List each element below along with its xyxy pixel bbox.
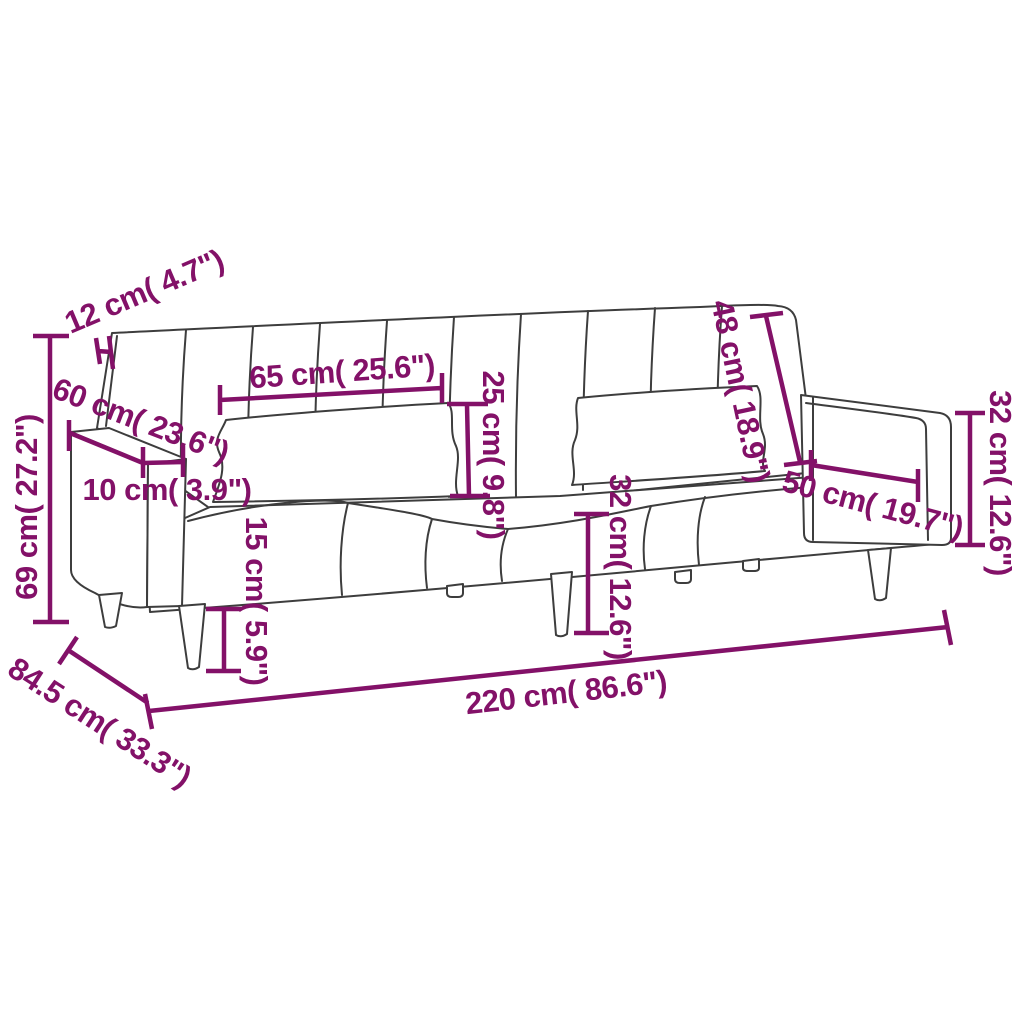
dim-label-armrest-width: 10 cm( 3.9") [83,472,252,507]
dim-label-leg-height: 15 cm( 5.9") [239,517,274,686]
dimension-overall-depth: 84.5 cm( 33.3") [2,637,198,794]
dim-label-armrest-height: 32 cm( 12.6") [983,390,1018,576]
sofa-dimension-diagram: 69 cm( 27.2") 12 cm( 4.7") 60 cm( 23.6")… [0,0,1024,1024]
dim-label-overall-width: 220 cm( 86.6") [463,664,668,722]
dim-label-seat-height: 32 cm( 12.6") [603,474,638,660]
sofa-leg-front-left [99,593,122,628]
sofa-leg-middle [551,572,572,636]
dim-label-pillow-height: 25 cm( 9.8") [476,371,511,540]
dimension-diagram-canvas: 69 cm( 27.2") 12 cm( 4.7") 60 cm( 23.6")… [0,0,1024,1024]
dim-label-overall-height: 69 cm( 27.2") [9,414,44,600]
dim-label-backrest-thickness: 12 cm( 4.7") [60,242,229,340]
dimension-armrest-height: 32 cm( 12.6") [955,390,1018,576]
sofa-leg-left [179,604,205,669]
sofa-leg-right [868,548,891,600]
